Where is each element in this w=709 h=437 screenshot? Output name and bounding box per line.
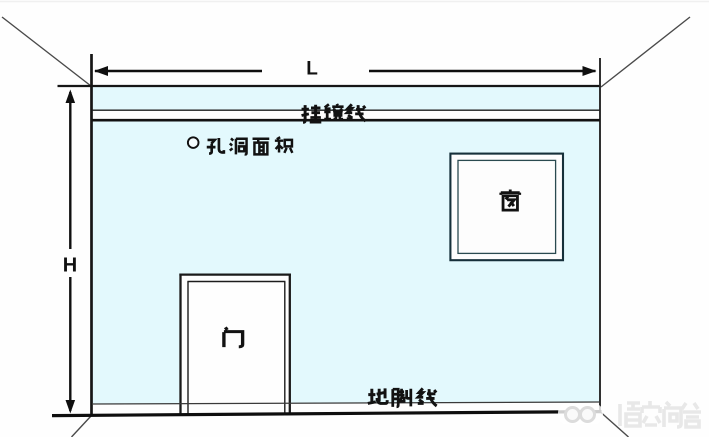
svg-text:L: L bbox=[306, 59, 318, 80]
svg-text:H: H bbox=[63, 255, 77, 277]
